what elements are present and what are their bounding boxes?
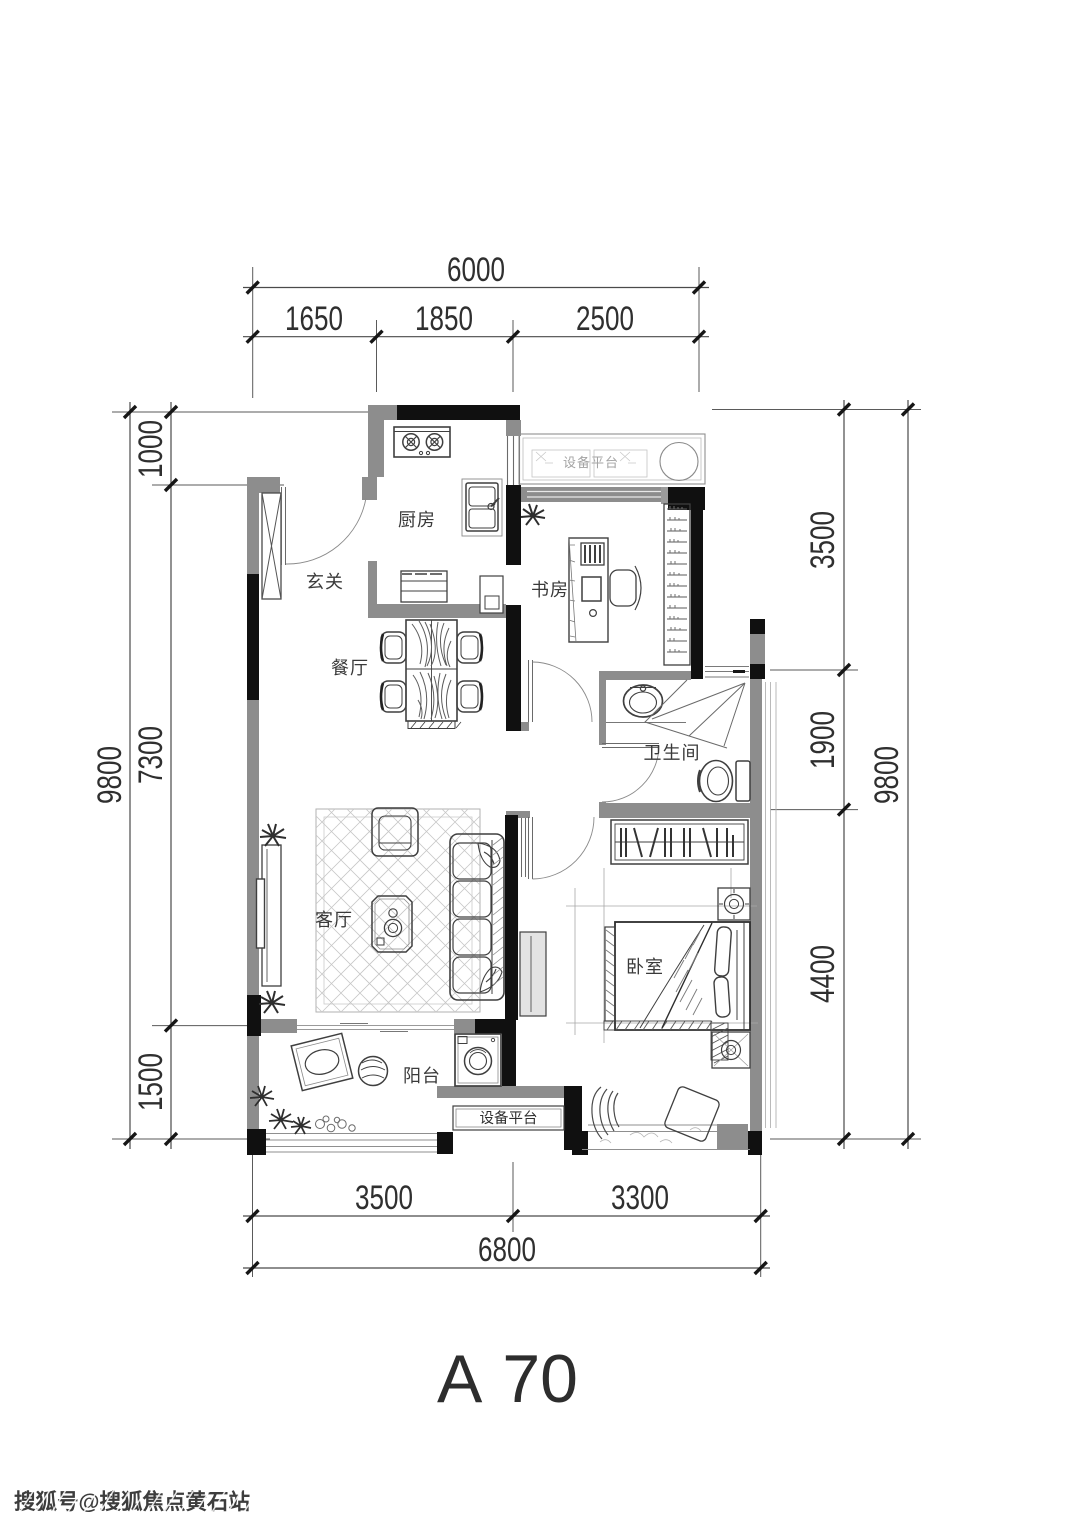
svg-text:3300: 3300 <box>611 1179 669 1217</box>
svg-text:厨房: 厨房 <box>398 510 436 530</box>
svg-text:9800: 9800 <box>91 746 129 804</box>
svg-text:9800: 9800 <box>868 746 906 804</box>
svg-text:书房: 书房 <box>531 580 569 600</box>
svg-text:2500: 2500 <box>576 300 634 338</box>
svg-text:卫生间: 卫生间 <box>644 743 701 763</box>
svg-text:1000: 1000 <box>132 420 170 478</box>
svg-text:阳台: 阳台 <box>403 1066 441 1086</box>
svg-text:设备平台: 设备平台 <box>563 455 619 470</box>
svg-text:7300: 7300 <box>132 726 170 784</box>
svg-text:6800: 6800 <box>478 1231 536 1269</box>
svg-text:1850: 1850 <box>415 300 473 338</box>
svg-text:A70: A70 <box>437 1341 578 1417</box>
svg-text:玄关: 玄关 <box>306 572 344 592</box>
svg-text:3500: 3500 <box>804 511 842 569</box>
svg-text:餐厅: 餐厅 <box>331 658 369 678</box>
svg-text:1500: 1500 <box>132 1053 170 1111</box>
svg-text:1900: 1900 <box>804 711 842 769</box>
svg-text:1650: 1650 <box>285 300 343 338</box>
svg-text:卧室: 卧室 <box>626 957 664 977</box>
svg-text:6000: 6000 <box>447 251 505 289</box>
svg-text:设备平台: 设备平台 <box>480 1110 538 1127</box>
svg-text:3500: 3500 <box>355 1179 413 1217</box>
svg-text:4400: 4400 <box>804 945 842 1003</box>
svg-text:客厅: 客厅 <box>315 910 353 930</box>
